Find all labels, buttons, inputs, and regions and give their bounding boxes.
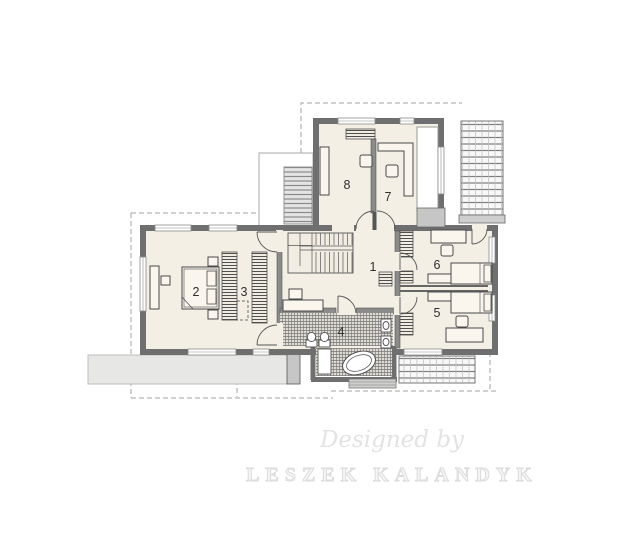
shelf [428,274,452,283]
sideboard [283,300,323,311]
cabinet-box [289,289,302,299]
stairs [288,233,353,273]
counter [320,147,329,195]
desk [431,230,466,243]
bidet [319,332,330,347]
door-jamb [373,212,377,230]
room-label-2: 2 [193,285,200,299]
terrace-bottom-left [88,355,288,384]
dresser [150,266,159,309]
floor-plan-page: 1 2 3 4 5 6 7 8 Designed by LESZEK KALAN… [0,0,638,556]
floor-plan-drawing: 1 2 3 4 5 6 7 8 Designed by LESZEK KALAN… [0,0,638,556]
terrace-step [349,379,396,388]
sink [381,336,391,348]
single-bed [451,292,492,313]
shelf [428,292,452,301]
side-table [161,276,170,285]
watermark-script: Designed by [319,427,465,453]
roof-terrace-bottom-right [399,356,475,383]
nightstand [208,310,218,319]
loggia [417,127,438,211]
chair [386,165,398,177]
room-label-3: 3 [241,285,248,299]
room-label-1: 1 [370,260,377,274]
room-label-6: 6 [434,258,441,272]
sink [381,319,391,332]
toilet [306,332,317,347]
room-label-5: 5 [434,306,441,320]
chair [360,155,372,167]
watermark-name: LESZEK KALANDYK [246,464,538,486]
door-leaf-bath [318,349,331,374]
wall-mass-se [417,208,445,227]
stair-opening [332,223,354,231]
chair [441,245,453,256]
roof-terrace-top-right [459,121,505,223]
desk [446,328,483,342]
chair [456,316,468,327]
room-label-8: 8 [344,178,351,192]
bathroom-floor [280,313,393,346]
room-label-4: 4 [338,325,345,339]
single-bed [451,263,492,284]
stair-roof-element [259,153,313,228]
room-label-7: 7 [385,190,392,204]
radiator [346,129,375,139]
double-bed [182,267,219,309]
nightstand [208,257,218,266]
